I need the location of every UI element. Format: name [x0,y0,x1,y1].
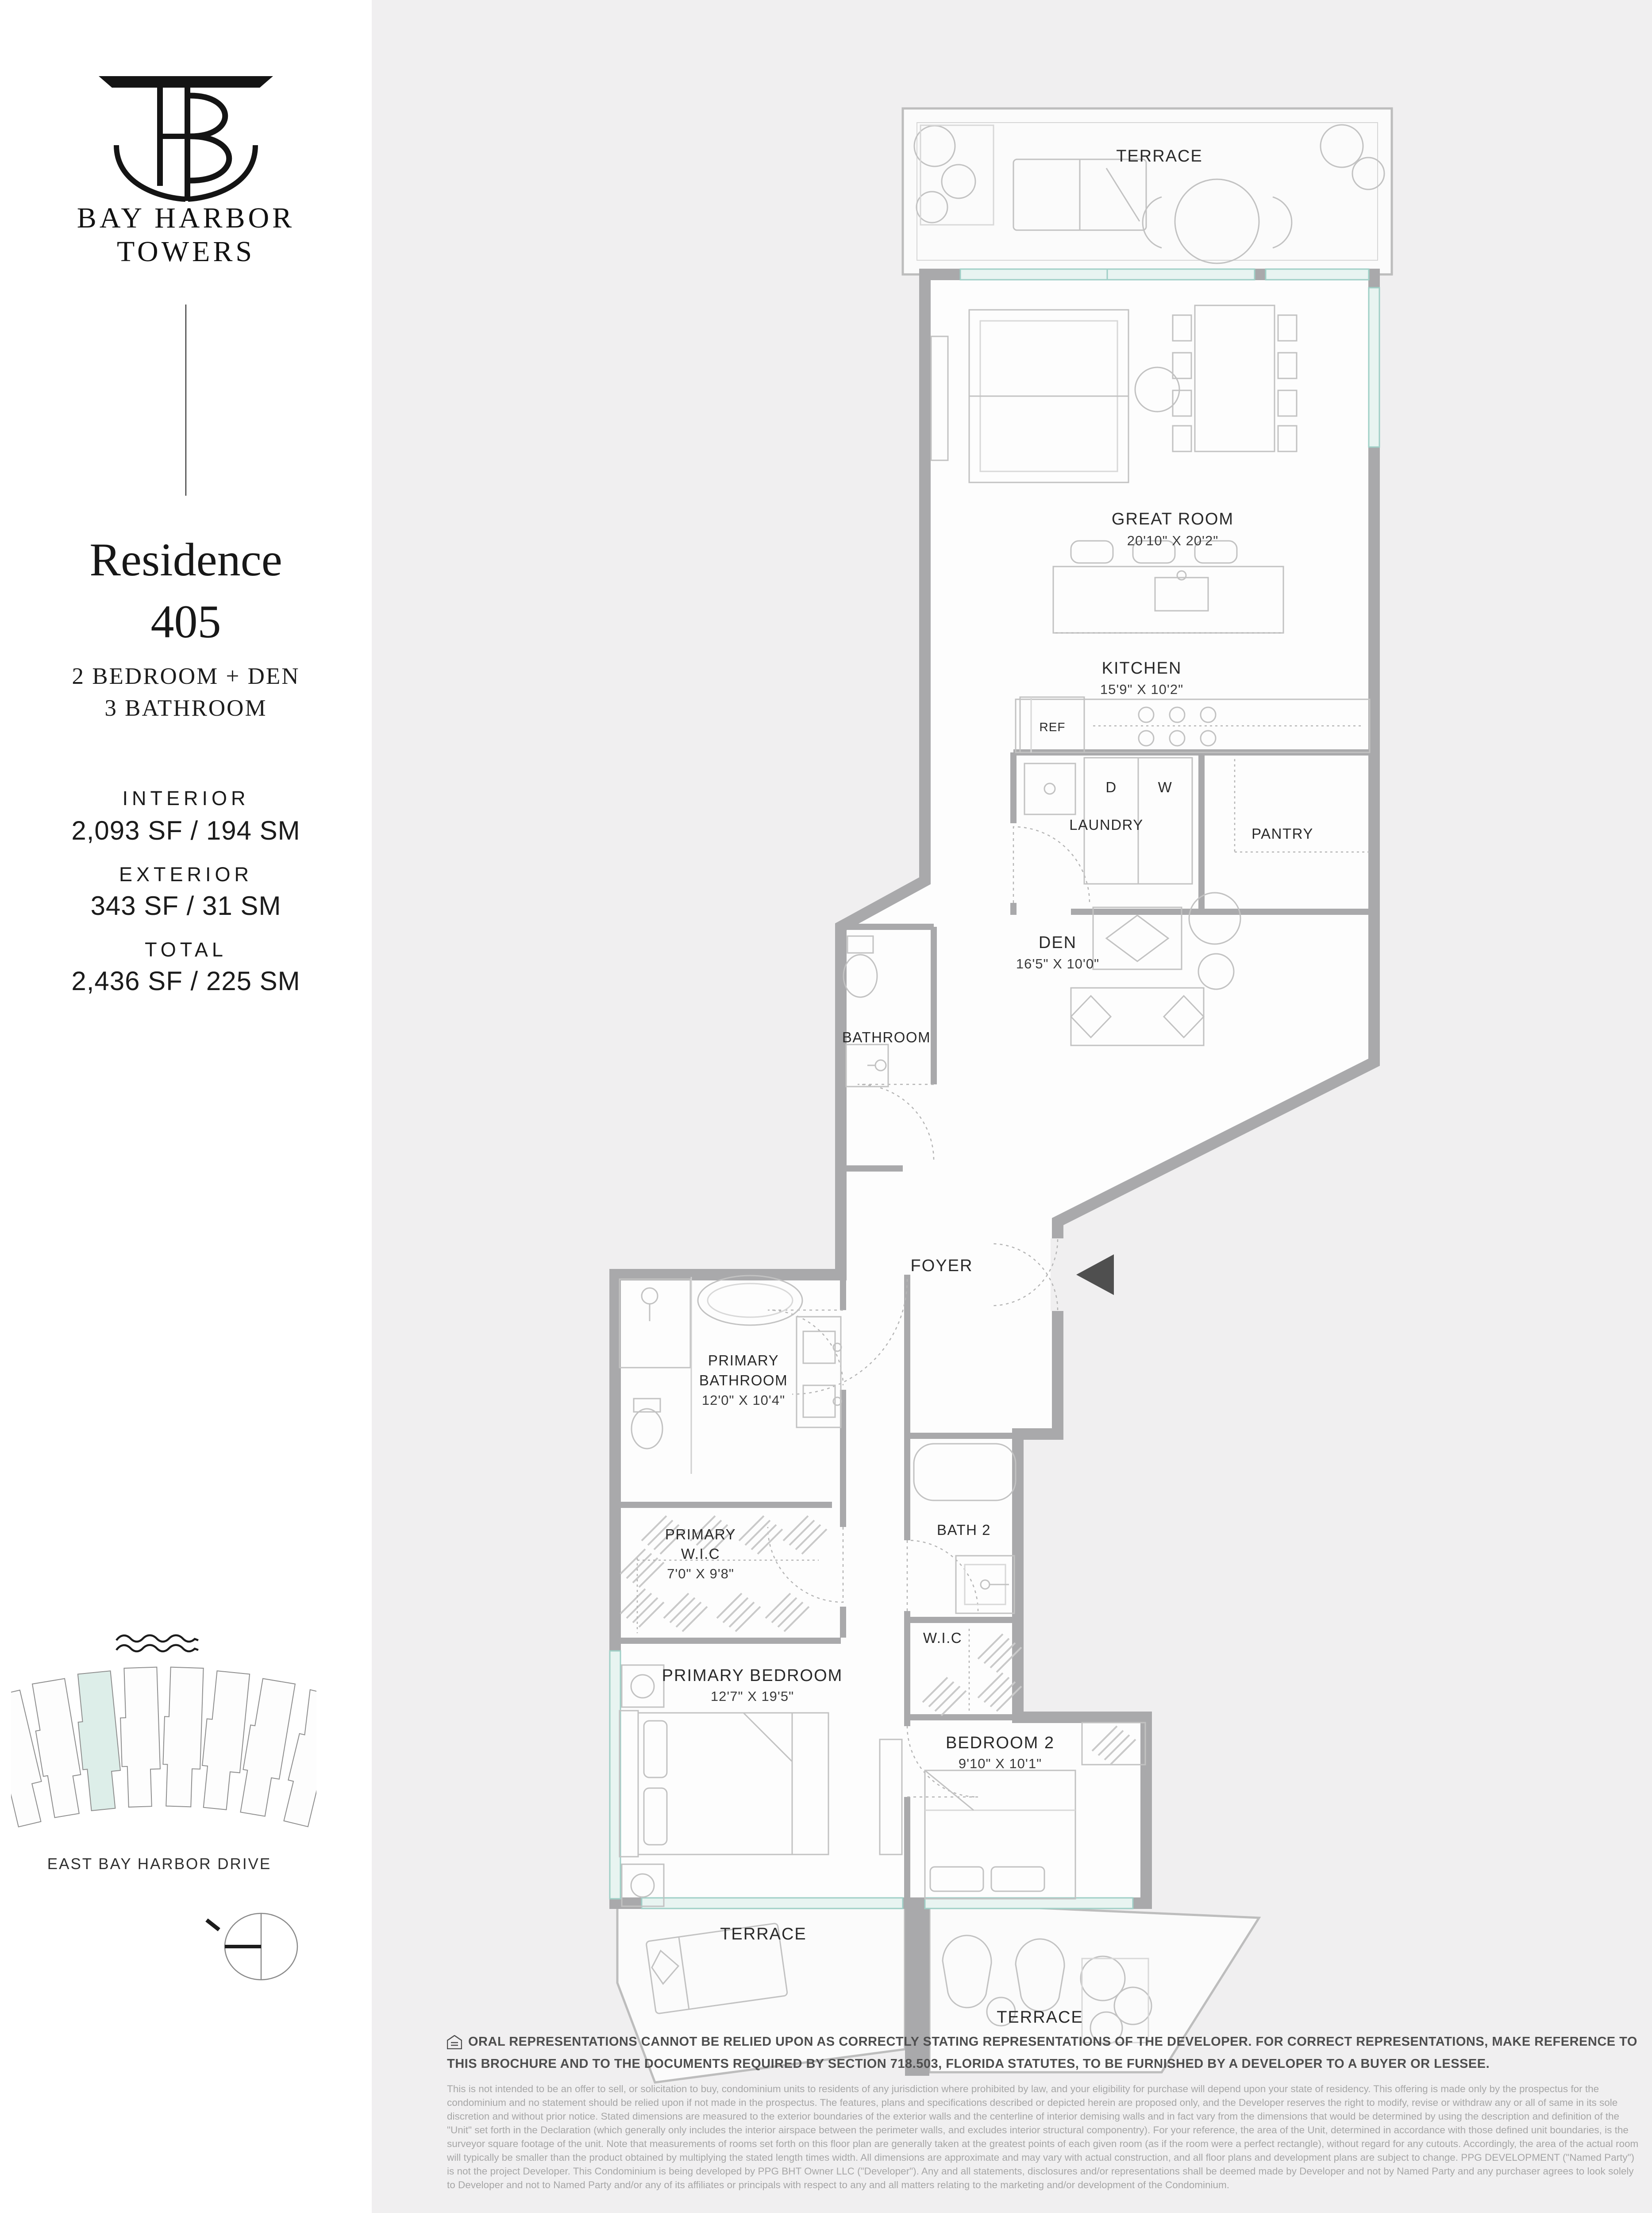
bathroom-label: BATHROOM [842,1029,931,1045]
entry-door-gap [1051,1238,1065,1311]
primary-bedroom-dims: 12'7" X 19'5" [711,1689,794,1704]
primary-wic-label-2: W.I.C [681,1546,720,1562]
disclaimer-bold: ORAL REPRESENTATIONS CANNOT BE RELIED UP… [447,2032,1642,2073]
equal-housing-icon [447,2035,462,2055]
keyplan-highlighted-unit [73,1671,124,1811]
pantry-label: PANTRY [1252,825,1313,842]
den-label: DEN [1039,933,1077,952]
great-room-label: GREAT ROOM [1112,510,1234,528]
bath2-label: BATH 2 [937,1522,991,1538]
primary-bathroom-label-2: BATHROOM [699,1372,788,1388]
brand-line1: BAY HARBOR [0,201,372,235]
water-waves-icon [114,1633,203,1655]
residence-number: 405 [0,591,372,653]
interior-label: INTERIOR [0,787,372,810]
residence-title: Residence 405 [0,529,372,653]
building-key-plan [11,1662,316,1848]
legal-disclaimer: ORAL REPRESENTATIONS CANNOT BE RELIED UP… [447,2032,1642,2192]
wic2-label: W.I.C [923,1630,962,1646]
config-line2: 3 BATHROOM [0,692,372,724]
laundry-label: LAUNDRY [1069,817,1144,833]
bay-harbor-towers-monogram-icon [91,71,281,204]
total-label: TOTAL [0,938,372,961]
entry-arrow-icon [1076,1254,1114,1295]
den-dims: 16'5" X 10'0" [1016,956,1099,972]
interior-value: 2,093 SF / 194 SM [0,815,372,846]
dryer-label: D [1105,779,1117,795]
foyer-label: FOYER [911,1257,973,1275]
exterior-label: EXTERIOR [0,863,372,886]
unit-outer-walls [615,274,1374,1903]
residence-name: Residence [0,529,372,591]
total-value: 2,436 SF / 225 SM [0,966,372,996]
residence-config: 2 BEDROOM + DEN 3 BATHROOM [0,660,372,724]
disclaimer-body: This is not intended to be an offer to s… [447,2082,1642,2192]
primary-wic-label-1: PRIMARY [665,1526,736,1542]
ref-label: REF [1040,720,1066,734]
terrace-bottom-left-label: TERRACE [720,1925,807,1943]
primary-bedroom-label: PRIMARY BEDROOM [662,1666,843,1685]
great-room-dims: 20'10" X 20'2" [1127,533,1218,548]
terrace-top-label: TERRACE [1116,147,1203,166]
kitchen-label: KITCHEN [1102,659,1182,678]
compass-icon [201,1894,308,1996]
primary-wic-dims: 7'0" X 9'8" [667,1566,734,1581]
street-name-label: EAST BAY HARBOR DRIVE [9,1855,310,1873]
terrace-top [903,108,1392,274]
primary-bathroom-dims: 12'0" X 10'4" [702,1392,785,1408]
terrace-bottom-right-label: TERRACE [997,2008,1083,2027]
bedroom2-label: BEDROOM 2 [946,1734,1055,1752]
disclaimer-bold-text: ORAL REPRESENTATIONS CANNOT BE RELIED UP… [447,2035,1637,2071]
kitchen-dims: 15'9" X 10'2" [1100,682,1183,697]
bedroom2-dims: 9'10" X 10'1" [959,1756,1042,1771]
config-line1: 2 BEDROOM + DEN [0,660,372,692]
vertical-divider [185,305,186,496]
floorplan-brochure-page: TERRACE GREAT ROOM 20'10" X 20'2" KITCHE… [0,0,1652,2213]
brand-name: BAY HARBOR TOWERS [0,201,372,269]
exterior-value: 343 SF / 31 SM [0,891,372,921]
washer-label: W [1158,779,1173,795]
sidebar: BAY HARBOR TOWERS Residence 405 2 BEDROO… [0,0,372,2213]
primary-bathroom-label-1: PRIMARY [708,1352,779,1369]
brand-line2: TOWERS [0,235,372,269]
